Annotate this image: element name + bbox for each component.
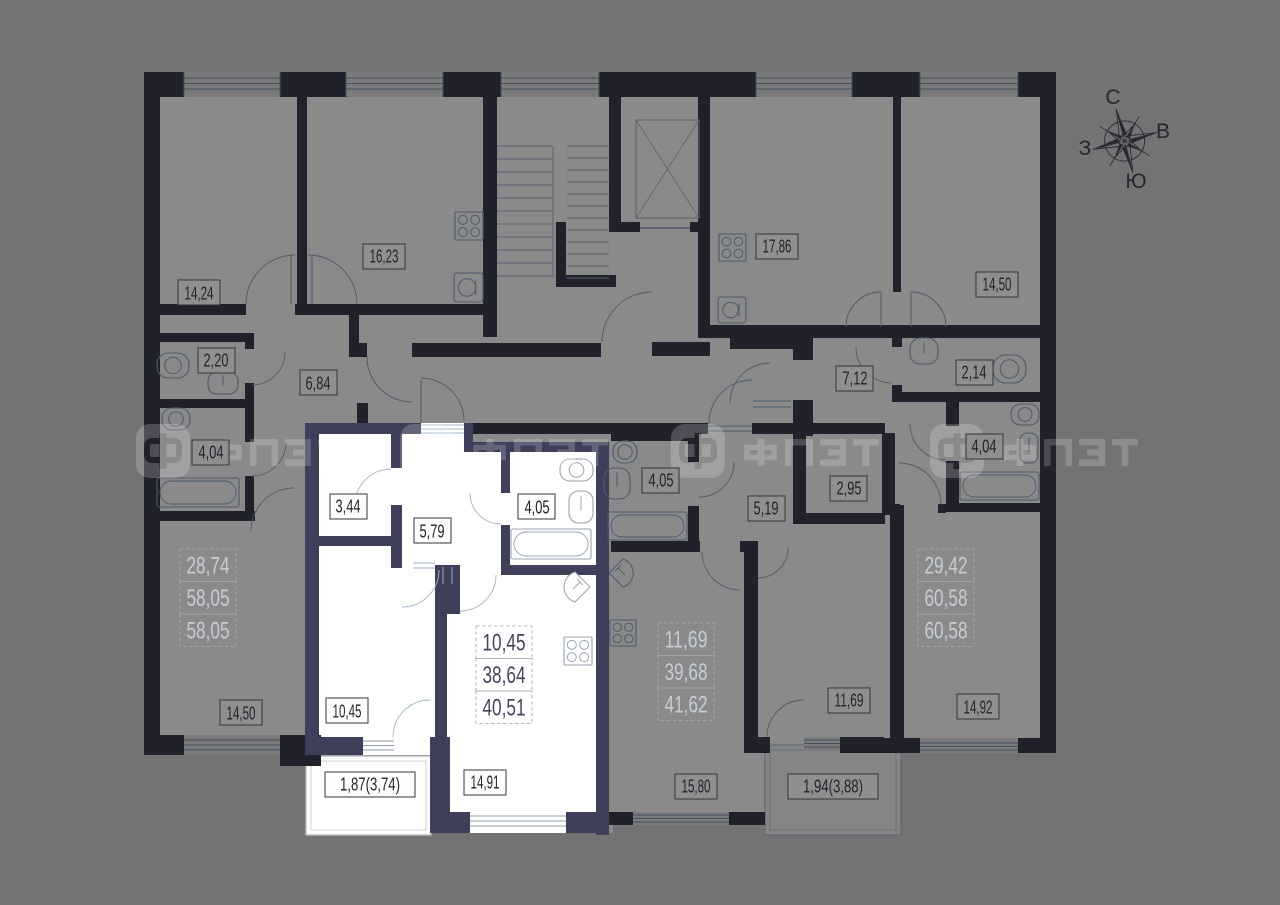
- svg-text:38,64: 38,64: [483, 662, 526, 689]
- svg-text:5,19: 5,19: [754, 499, 779, 519]
- svg-text:4,05: 4,05: [525, 498, 550, 518]
- svg-text:В: В: [1156, 120, 1170, 143]
- svg-text:39,68: 39,68: [665, 659, 708, 686]
- svg-text:15,80: 15,80: [682, 777, 711, 797]
- svg-text:2,20: 2,20: [204, 351, 229, 371]
- svg-text:З: З: [1079, 137, 1092, 160]
- svg-text:11,69: 11,69: [665, 627, 708, 654]
- svg-text:10,45: 10,45: [333, 702, 362, 722]
- svg-text:14,91: 14,91: [471, 773, 500, 793]
- svg-text:60,58: 60,58: [925, 618, 968, 645]
- svg-text:4,04: 4,04: [972, 437, 997, 457]
- svg-text:4,04: 4,04: [199, 443, 224, 463]
- svg-text:Ю: Ю: [1125, 170, 1146, 193]
- svg-text:60,58: 60,58: [925, 585, 968, 612]
- svg-text:1,94(3,88): 1,94(3,88): [803, 777, 863, 797]
- svg-text:7,12: 7,12: [843, 369, 868, 389]
- svg-text:14,50: 14,50: [227, 704, 256, 724]
- svg-text:2,14: 2,14: [962, 363, 987, 383]
- svg-text:29,42: 29,42: [925, 553, 968, 580]
- svg-text:11,69: 11,69: [835, 691, 864, 711]
- svg-text:14,50: 14,50: [983, 275, 1012, 295]
- svg-text:14,92: 14,92: [964, 698, 993, 718]
- svg-text:3,44: 3,44: [336, 497, 361, 517]
- svg-text:1,87(3,74): 1,87(3,74): [340, 775, 400, 795]
- svg-text:10,45: 10,45: [483, 630, 526, 657]
- svg-text:2,95: 2,95: [837, 479, 862, 499]
- svg-text:17,86: 17,86: [763, 237, 792, 257]
- svg-text:6,84: 6,84: [306, 374, 331, 394]
- svg-text:41,62: 41,62: [665, 692, 708, 719]
- svg-text:40,51: 40,51: [483, 695, 526, 722]
- svg-text:58,05: 58,05: [187, 585, 230, 612]
- svg-text:14,24: 14,24: [185, 284, 214, 304]
- svg-text:5,79: 5,79: [420, 522, 445, 542]
- svg-text:28,74: 28,74: [187, 553, 230, 580]
- svg-text:58,05: 58,05: [187, 618, 230, 645]
- svg-text:4,05: 4,05: [649, 471, 674, 491]
- svg-text:16,23: 16,23: [370, 247, 399, 267]
- svg-text:С: С: [1105, 86, 1120, 109]
